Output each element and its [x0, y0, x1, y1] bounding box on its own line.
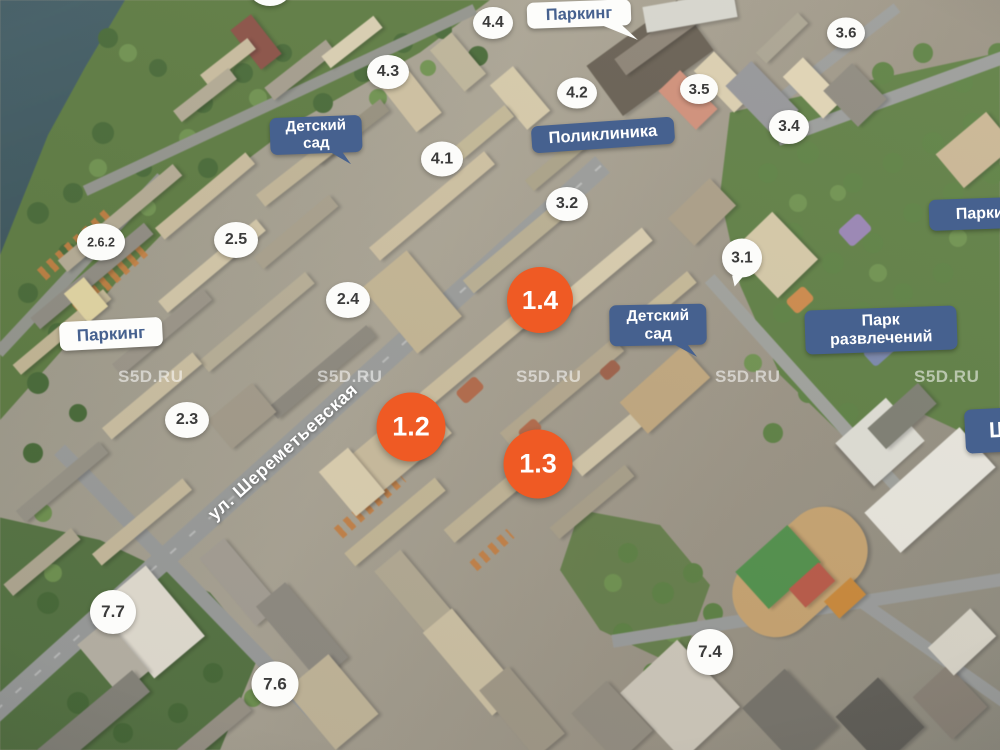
building: [362, 250, 462, 353]
building-marker-2-4[interactable]: 2.4: [326, 282, 370, 318]
building-marker-3-4[interactable]: 3.4: [769, 110, 809, 144]
label-line: развлечений: [830, 328, 933, 349]
marker-label: 2.4: [337, 291, 359, 309]
building-marker-2-5[interactable]: 2.5: [214, 222, 258, 258]
building-marker-4-1[interactable]: 4.1: [421, 142, 463, 177]
building: [928, 608, 996, 675]
building-marker-4-3[interactable]: 4.3: [367, 55, 409, 89]
label-line: сад: [303, 135, 330, 153]
building-marker-1-2[interactable]: 1.2: [377, 393, 446, 462]
building-marker-7-6[interactable]: 7.6: [252, 662, 299, 707]
marker-label: 1.3: [519, 449, 557, 480]
marker-label: 4.2: [566, 84, 588, 102]
marker-label: 2.6.2: [87, 235, 115, 249]
building-marker-7-4[interactable]: 7.4: [687, 629, 733, 675]
watermark: S5D.RU: [118, 367, 183, 387]
label-parking-top: Паркинг: [527, 0, 632, 29]
label-line: Парк: [861, 311, 900, 330]
label-parking-west: Паркинг: [59, 317, 163, 351]
building: [208, 383, 277, 449]
label-line: сад: [644, 325, 672, 343]
marker-label: 3.6: [836, 25, 857, 42]
label-line: Поликлиника: [548, 122, 658, 148]
building-marker-2-6-2[interactable]: 2.6.2: [77, 224, 125, 261]
building: [836, 677, 925, 750]
marker-label: 3.5: [689, 81, 710, 98]
building: [756, 12, 808, 63]
trees-light: [0, 0, 16, 16]
label-school-partial: Ш: [964, 406, 1000, 454]
building-marker-3-5[interactable]: 3.5: [680, 74, 718, 104]
building: [430, 32, 486, 91]
marker-label: 2.5: [225, 231, 247, 249]
marker-label: 7.6: [263, 674, 287, 694]
label-line: Паркинг: [956, 203, 1000, 223]
label-line: Детский: [285, 117, 346, 136]
marker-label: 3.2: [556, 195, 578, 213]
marker-label: 7.7: [101, 602, 125, 622]
parking-stripes-4: [469, 529, 514, 571]
building: [285, 654, 378, 750]
building: [199, 272, 314, 372]
marker-label: 2.3: [176, 411, 198, 429]
building-marker-3-2[interactable]: 3.2: [546, 187, 588, 221]
building: [742, 669, 838, 750]
building-marker-3-6[interactable]: 3.6: [827, 18, 865, 49]
marker-label: 3.1: [731, 249, 753, 267]
watermark: S5D.RU: [516, 367, 581, 387]
label-kindergarten-center: Детский сад: [609, 304, 707, 347]
label-amusement-park: Парк развлечений: [804, 305, 957, 354]
marker-label: 1.2: [392, 412, 430, 443]
marker-label: 4.4: [482, 14, 504, 32]
label-parking-east: Паркинг: [928, 196, 1000, 231]
label-line: Паркинг: [546, 4, 613, 25]
building-marker-2-3[interactable]: 2.3: [165, 402, 209, 438]
marker-label: 7.4: [698, 642, 722, 662]
label-kindergarten-north: Детский сад: [269, 115, 362, 155]
marker-label: 4.3: [377, 63, 399, 81]
building-marker-4-4[interactable]: 4.4: [473, 7, 513, 39]
residential-masterplan-map: S5D.RU S5D.RU S5D.RU S5D.RU S5D.RU ул. Ш…: [0, 0, 1000, 750]
watermark: S5D.RU: [914, 367, 979, 387]
label-line: Ш: [988, 417, 1000, 443]
marker-label: 3.4: [778, 118, 800, 136]
marker-label: 1.4: [522, 285, 558, 316]
watermark: S5D.RU: [715, 367, 780, 387]
building-marker-1-3[interactable]: 1.3: [504, 430, 573, 499]
building-marker-4-2[interactable]: 4.2: [557, 78, 597, 109]
building-marker-1-4[interactable]: 1.4: [507, 267, 573, 333]
building: [254, 195, 339, 269]
building-marker-3-1[interactable]: 3.1: [722, 239, 762, 278]
label-line: Детский: [626, 307, 689, 325]
label-line: Паркинг: [76, 323, 145, 346]
building-marker-7-7[interactable]: 7.7: [90, 590, 136, 634]
marker-label: 4.1: [431, 150, 453, 168]
